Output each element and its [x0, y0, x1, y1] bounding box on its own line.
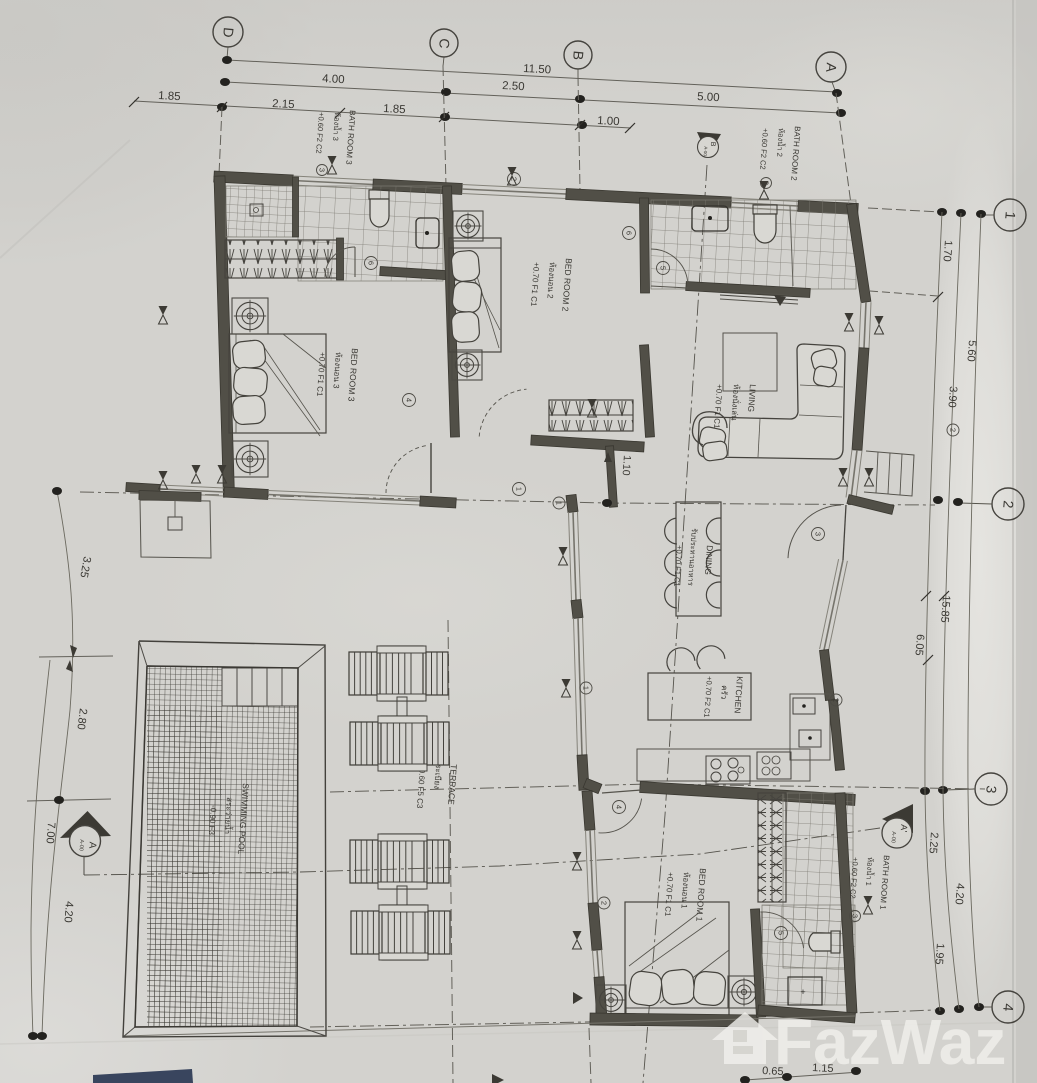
svg-text:5: 5: [776, 931, 785, 935]
svg-text:4: 4: [614, 805, 623, 809]
svg-text:6.05: 6.05: [913, 634, 926, 656]
svg-text:5.60: 5.60: [965, 340, 978, 362]
svg-text:1: 1: [581, 686, 590, 690]
svg-text:6: 6: [366, 261, 375, 265]
svg-text:2: 2: [948, 428, 957, 432]
svg-text:3: 3: [983, 785, 1000, 794]
svg-text:2.25: 2.25: [927, 832, 940, 854]
svg-text:2: 2: [599, 901, 608, 905]
svg-text:2.15: 2.15: [272, 98, 295, 111]
svg-text:B: B: [709, 142, 716, 147]
svg-text:A': A': [899, 824, 910, 833]
svg-text:4.20: 4.20: [62, 901, 75, 923]
svg-text:LIVING: LIVING: [746, 384, 758, 413]
svg-text:1.85: 1.85: [158, 90, 181, 103]
svg-text:7.00: 7.00: [44, 822, 57, 844]
svg-text:A-00: A-00: [703, 146, 709, 156]
svg-text:ระเบียง: ระเบียง: [432, 764, 443, 790]
svg-text:1.00: 1.00: [597, 115, 620, 128]
svg-text:ห้องน้ำ 3: ห้องน้ำ 3: [331, 112, 343, 141]
svg-text:4.00: 4.00: [322, 73, 345, 86]
svg-text:1: 1: [1002, 211, 1019, 220]
svg-text:1: 1: [554, 501, 563, 505]
svg-text:3: 3: [317, 168, 326, 172]
svg-text:1.10: 1.10: [620, 455, 633, 476]
svg-text:3.90: 3.90: [946, 386, 959, 408]
svg-text:D: D: [220, 27, 237, 38]
svg-text:FazWaz: FazWaz: [774, 1006, 1006, 1078]
svg-text:3: 3: [850, 914, 859, 918]
svg-text:2: 2: [831, 698, 840, 702]
svg-text:5: 5: [658, 266, 667, 270]
svg-text:4.20: 4.20: [953, 883, 966, 905]
svg-text:2: 2: [1000, 500, 1017, 509]
svg-text:A: A: [86, 841, 97, 849]
svg-text:5.00: 5.00: [697, 91, 720, 104]
svg-text:1.85: 1.85: [383, 103, 406, 116]
svg-text:1.95: 1.95: [933, 943, 946, 965]
svg-text:1: 1: [514, 487, 523, 491]
svg-text:1.70: 1.70: [941, 240, 954, 262]
svg-text:ห้องน้ำ 1: ห้องน้ำ 1: [864, 857, 876, 886]
svg-text:6: 6: [624, 231, 633, 235]
svg-text:DINING: DINING: [703, 545, 715, 575]
svg-text:4: 4: [404, 398, 413, 402]
svg-text:ห้องน้ำ 2: ห้องน้ำ 2: [775, 128, 787, 157]
svg-text:A-00: A-00: [78, 839, 85, 851]
svg-text:2.50: 2.50: [502, 80, 525, 93]
svg-text:A-00: A-00: [890, 831, 897, 843]
svg-text:3: 3: [813, 532, 822, 536]
svg-text:11.50: 11.50: [523, 63, 552, 76]
svg-text:B: B: [570, 50, 587, 61]
svg-text:ครัว: ครัว: [719, 685, 729, 700]
svg-text:C: C: [436, 38, 453, 49]
svg-text:+: +: [800, 987, 805, 997]
